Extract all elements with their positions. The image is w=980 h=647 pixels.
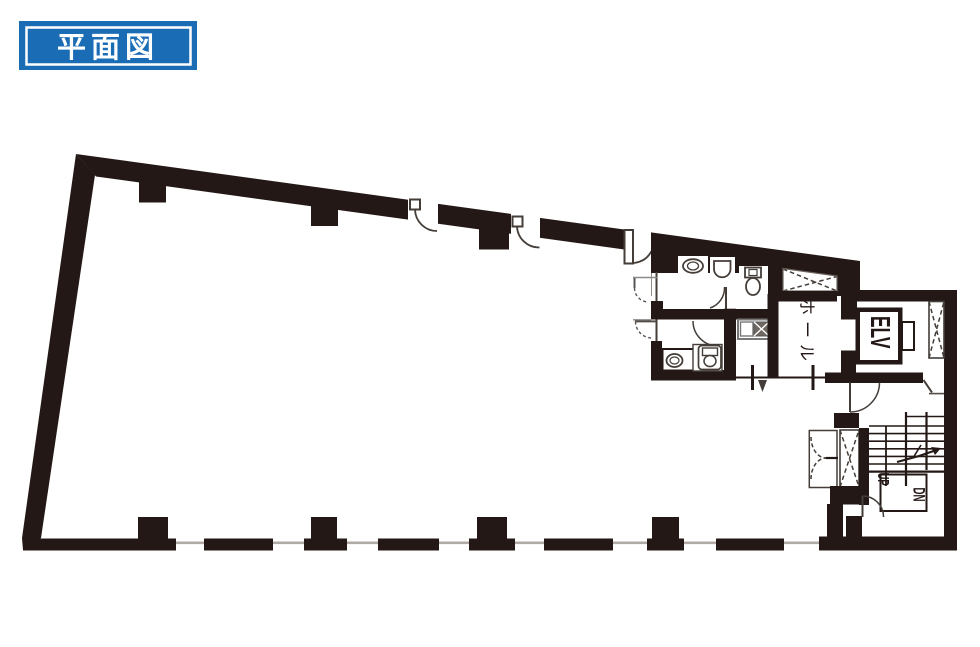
svg-text:DN: DN xyxy=(910,488,930,502)
svg-text:平面図: 平面図 xyxy=(57,32,159,64)
svg-text:ホール: ホール xyxy=(797,298,816,367)
svg-text:ELV: ELV xyxy=(865,316,896,349)
